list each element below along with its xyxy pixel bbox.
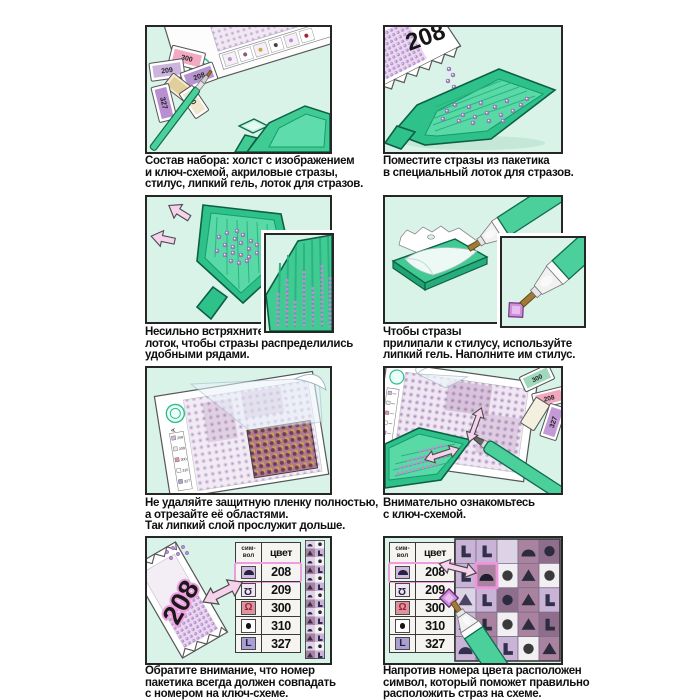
step-5-caption: Не удаляйте защитную пленку полностью, а…	[145, 498, 397, 533]
kit-contents-art: 300 209 208 327	[147, 27, 330, 152]
step-4-illustration	[383, 195, 563, 324]
step-4-caption: Чтобы стразы прилипали к стилусу, исполь…	[383, 327, 635, 362]
gel-cube-icon	[509, 303, 524, 318]
step-7-caption: Обратите внимание, что номер пакетика вс…	[145, 666, 397, 700]
aligned-strass-art	[266, 235, 332, 331]
step-1-illustration: 300 209 208 327	[145, 25, 332, 154]
step-6-illustration: 300 208 327	[383, 366, 563, 495]
pour-strass-art: 208	[385, 27, 561, 152]
strass-packet: 208	[385, 27, 464, 92]
step-5-illustration: МОСФА 208 209 300 310 327	[145, 366, 332, 495]
study-key-art: 300 208 327	[385, 368, 561, 493]
step-2-caption: Поместите стразы из пакетика в специальн…	[383, 156, 635, 179]
instruction-sheet: 300 209 208 327	[0, 0, 700, 700]
packet-number-art: 208	[147, 538, 330, 663]
step-1-caption: Состав набора: холст с изображением и кл…	[145, 156, 397, 191]
stylus-tip-art	[502, 238, 584, 326]
step-7-illustration: 208 сим- вол цвет 208 209	[145, 536, 332, 665]
step-2-illustration: 208	[383, 25, 563, 154]
step-8-caption: Напротив номера цвета расположен символ,…	[383, 666, 635, 700]
step-8-illustration: сим- вол цвет 208 209 300 310 327	[383, 536, 563, 665]
step-3-illustration	[145, 195, 332, 324]
symbol-placement-art	[385, 538, 561, 663]
step-6-caption: Внимательно ознакомьтесь с ключ-схемой.	[383, 498, 635, 521]
stylus-zoom-inset	[500, 236, 586, 328]
tray-zoom-inset	[264, 233, 334, 333]
protective-film-art: МОСФА 208 209 300 310 327	[147, 368, 330, 493]
